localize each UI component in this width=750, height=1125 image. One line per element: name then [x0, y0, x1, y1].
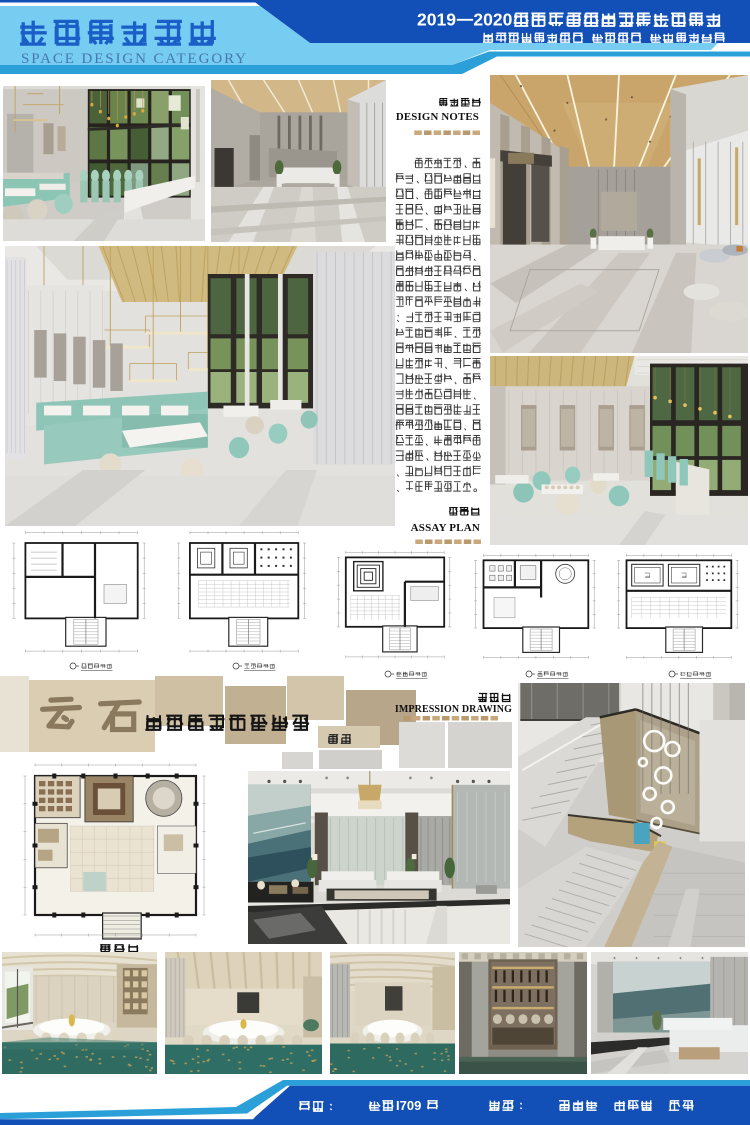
svg-text:2020: 2020 [473, 9, 512, 29]
svg-text:I709: I709 [396, 1098, 421, 1113]
svg-text:ASSAY PLAN: ASSAY PLAN [411, 522, 480, 534]
svg-text:DESIGN NOTES: DESIGN NOTES [396, 111, 479, 123]
svg-text:2019: 2019 [417, 9, 456, 29]
svg-text:IMPRESSION DRAWING: IMPRESSION DRAWING [395, 704, 512, 715]
svg-text:SPACE DESIGN CATEGORY: SPACE DESIGN CATEGORY [21, 51, 248, 67]
